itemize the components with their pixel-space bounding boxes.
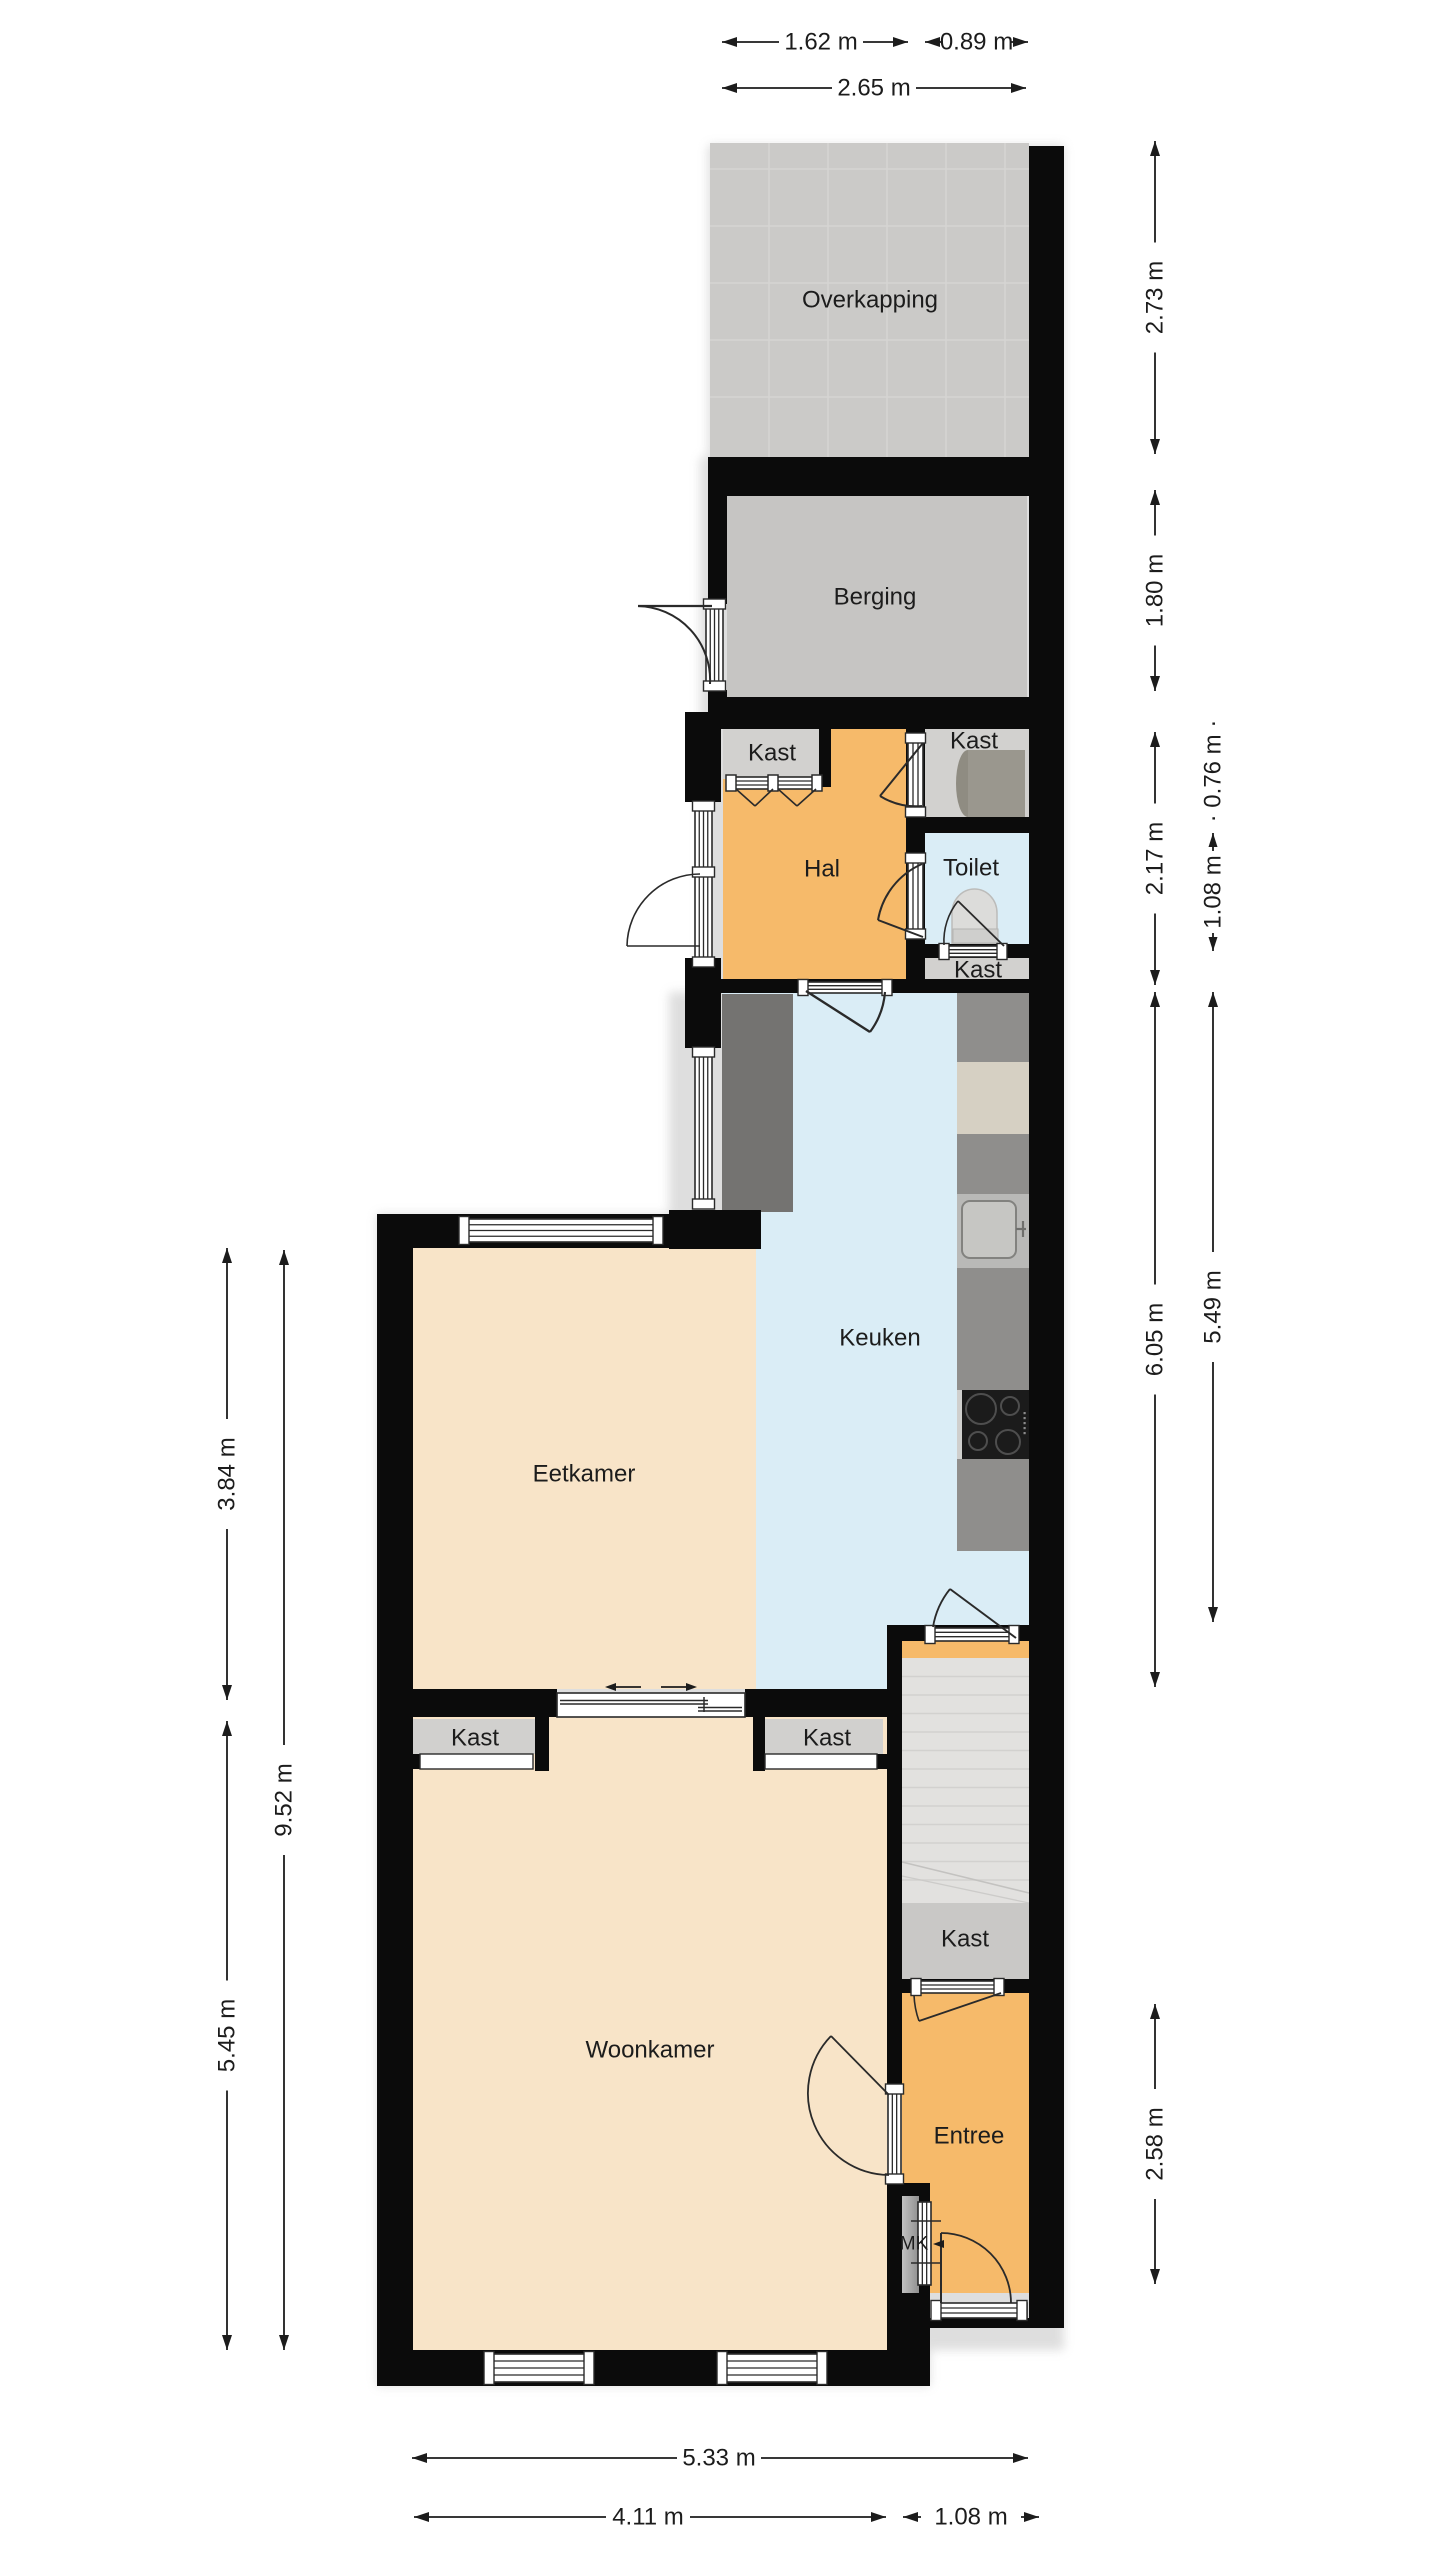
svg-text:3.84 m: 3.84 m xyxy=(214,1437,241,1510)
svg-text:MK: MK xyxy=(900,2234,929,2255)
svg-text:2.73 m: 2.73 m xyxy=(1142,261,1169,334)
svg-text:Kast: Kast xyxy=(941,1926,989,1953)
svg-text:9.52 m: 9.52 m xyxy=(271,1763,298,1836)
svg-text:Entree: Entree xyxy=(934,2123,1005,2150)
svg-text:Overkapping: Overkapping xyxy=(802,287,938,314)
svg-text:Kast: Kast xyxy=(451,1725,499,1752)
svg-text:1.62 m: 1.62 m xyxy=(784,29,857,56)
svg-text:Kast: Kast xyxy=(950,728,998,755)
svg-text:Kast: Kast xyxy=(954,957,1002,984)
svg-text:5.49 m: 5.49 m xyxy=(1200,1270,1227,1343)
svg-text:Kast: Kast xyxy=(748,740,796,767)
svg-text:2.65 m: 2.65 m xyxy=(837,75,910,102)
svg-text:Woonkamer: Woonkamer xyxy=(586,2037,715,2064)
svg-text:· 0.76 m ·: · 0.76 m · xyxy=(1200,720,1227,823)
svg-text:Eetkamer: Eetkamer xyxy=(533,1461,636,1488)
svg-text:5.33 m: 5.33 m xyxy=(682,2445,755,2472)
svg-text:2.58 m: 2.58 m xyxy=(1142,2107,1169,2180)
svg-text:1.80 m: 1.80 m xyxy=(1142,554,1169,627)
svg-text:Toilet: Toilet xyxy=(943,855,999,882)
svg-text:4.11 m: 4.11 m xyxy=(612,2504,684,2531)
svg-text:Keuken: Keuken xyxy=(839,1325,920,1352)
svg-text:0.89 m: 0.89 m xyxy=(940,29,1013,56)
svg-text:2.17 m: 2.17 m xyxy=(1142,822,1169,895)
svg-text:6.05 m: 6.05 m xyxy=(1142,1303,1169,1376)
svg-text:Kast: Kast xyxy=(803,1725,851,1752)
svg-text:5.45 m: 5.45 m xyxy=(214,1999,241,2072)
svg-text:Berging: Berging xyxy=(834,584,917,611)
svg-text:Hal: Hal xyxy=(804,856,840,883)
svg-text:1.08 m: 1.08 m xyxy=(1200,855,1227,928)
svg-text:1.08 m: 1.08 m xyxy=(934,2504,1007,2531)
